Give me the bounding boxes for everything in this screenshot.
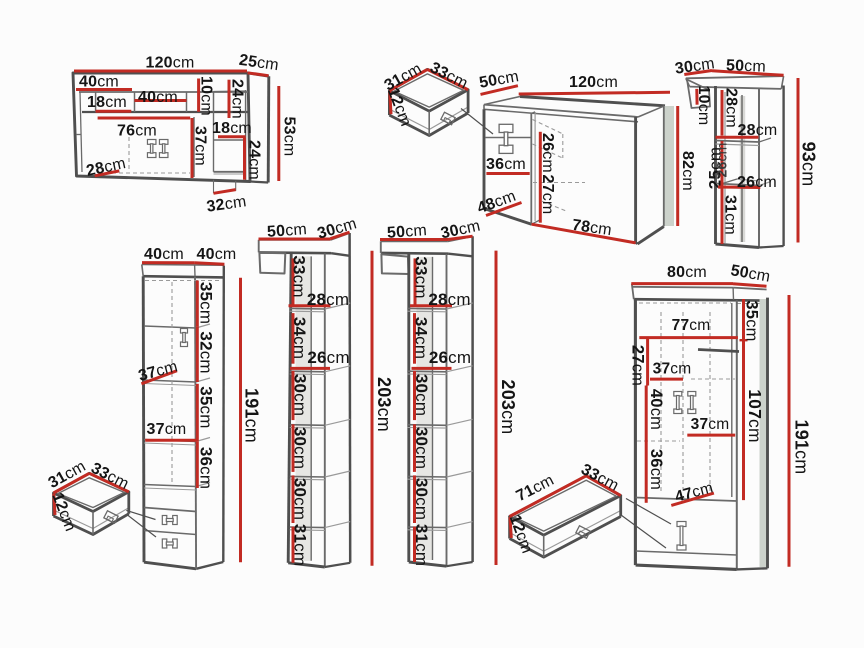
svg-text:35cm: 35cm [743, 300, 761, 341]
svg-text:30cm: 30cm [291, 374, 310, 416]
svg-text:10cm: 10cm [695, 86, 712, 126]
svg-text:26cm: 26cm [714, 142, 730, 177]
svg-text:30cm: 30cm [413, 427, 432, 469]
svg-text:191cm: 191cm [242, 388, 262, 443]
svg-text:37cm: 37cm [691, 416, 730, 433]
svg-text:77cm: 77cm [672, 317, 711, 334]
svg-text:36cm: 36cm [197, 447, 216, 489]
svg-text:40cm: 40cm [138, 89, 178, 106]
svg-text:82cm: 82cm [680, 151, 697, 191]
svg-text:27cm: 27cm [539, 175, 556, 215]
svg-text:24cm: 24cm [229, 79, 246, 119]
svg-text:37cm: 37cm [147, 421, 187, 438]
svg-text:30cm: 30cm [291, 427, 310, 469]
svg-text:203cm: 203cm [374, 377, 394, 432]
svg-text:31cm: 31cm [722, 195, 739, 235]
svg-text:120cm: 120cm [569, 74, 618, 91]
svg-text:26cm: 26cm [737, 174, 777, 191]
svg-text:40cm: 40cm [144, 246, 184, 263]
svg-text:28cm: 28cm [428, 290, 470, 309]
svg-text:32cm: 32cm [197, 331, 216, 373]
svg-text:26cm: 26cm [307, 348, 349, 367]
svg-text:18cm: 18cm [87, 94, 127, 111]
svg-text:53cm: 53cm [281, 117, 298, 157]
svg-text:80cm: 80cm [667, 264, 707, 281]
svg-text:30cm: 30cm [291, 478, 310, 520]
svg-text:31cm: 31cm [291, 524, 310, 566]
svg-text:50cm: 50cm [386, 222, 427, 242]
svg-text:35cm: 35cm [197, 282, 216, 324]
svg-text:40cm: 40cm [647, 389, 665, 430]
svg-text:27cm: 27cm [629, 345, 647, 386]
svg-text:26cm: 26cm [539, 133, 556, 173]
svg-text:50cm: 50cm [726, 57, 767, 75]
svg-text:35cm: 35cm [197, 386, 216, 428]
svg-text:24cm: 24cm [246, 140, 263, 180]
svg-text:107cm: 107cm [745, 389, 765, 443]
svg-text:18cm: 18cm [212, 120, 252, 137]
svg-text:36cm: 36cm [647, 449, 665, 490]
svg-text:37cm: 37cm [653, 360, 692, 377]
svg-text:191cm: 191cm [792, 419, 812, 474]
svg-text:40cm: 40cm [197, 246, 237, 263]
svg-text:37cm: 37cm [192, 126, 209, 166]
svg-text:93cm: 93cm [799, 142, 819, 187]
svg-text:30cm: 30cm [413, 374, 432, 416]
svg-text:30cm: 30cm [413, 478, 432, 520]
svg-text:28cm: 28cm [738, 122, 778, 139]
svg-text:50cm: 50cm [266, 221, 307, 241]
svg-text:40cm: 40cm [79, 73, 119, 90]
svg-text:31cm: 31cm [413, 524, 432, 566]
svg-text:76cm: 76cm [117, 122, 157, 139]
svg-text:36cm: 36cm [486, 156, 526, 173]
svg-text:26cm: 26cm [429, 348, 471, 367]
svg-text:203cm: 203cm [498, 379, 518, 434]
svg-text:10cm: 10cm [198, 76, 215, 116]
svg-text:120cm: 120cm [145, 54, 194, 71]
svg-text:28cm: 28cm [307, 290, 349, 309]
